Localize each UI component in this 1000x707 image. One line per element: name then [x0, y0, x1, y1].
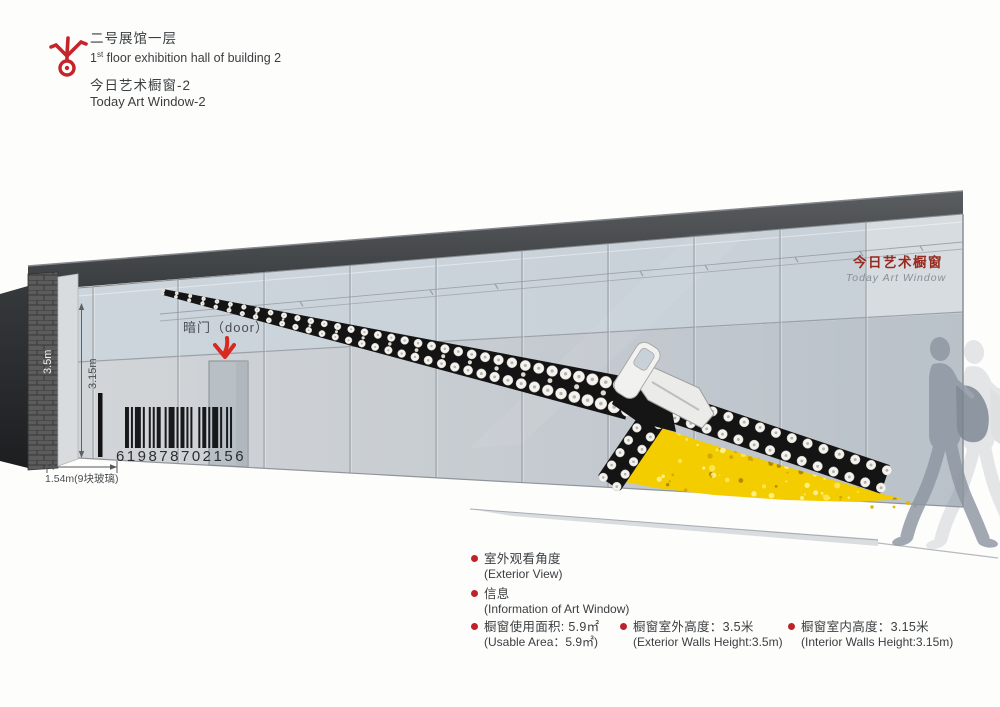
slide-canvas: 暗门（door） 3.15m 619878702156 3.5m 1. — [0, 0, 1000, 707]
today-art-museum-logo — [44, 28, 94, 84]
bullet-icon — [471, 623, 478, 630]
note-zh: 橱窗室外高度：3.5米 — [633, 619, 783, 635]
dim-interior-height-label: 3.15m — [87, 358, 99, 389]
note-en: (Exterior View) — [484, 567, 562, 582]
page-subtitle-en: Today Art Window-2 — [90, 94, 281, 110]
wall-edge-strip — [58, 274, 78, 466]
header-text: 二号展馆一层 1st floor exhibition hall of buil… — [90, 30, 281, 110]
dim-glass-width-label: 1.54m(9块玻璃) — [45, 472, 119, 485]
note-en: (Exterior Walls Height:3.5m) — [633, 635, 783, 650]
bullet-icon — [620, 623, 627, 630]
bullet-icon — [788, 623, 795, 630]
note-zh: 室外观看角度 — [484, 551, 562, 567]
dim-exterior-height-label: 3.5m — [42, 350, 54, 374]
note-information: 信息 (Information of Art Window) — [471, 586, 629, 617]
note-exterior-height: 橱窗室外高度：3.5米 (Exterior Walls Height:3.5m) — [620, 619, 783, 650]
barcode-number: 619878702156 — [116, 448, 246, 465]
door-label: 暗门（door） — [183, 320, 269, 335]
note-en: (Interior Walls Height:3.15m) — [801, 635, 953, 650]
note-zh: 信息 — [484, 586, 629, 602]
note-zh: 橱窗室内高度：3.15米 — [801, 619, 953, 635]
note-zh: 橱窗使用面积: 5.9㎡ — [484, 619, 599, 635]
note-usable-area: 橱窗使用面积: 5.9㎡ (Usable Area：5.9㎡) — [471, 619, 599, 650]
note-en: (Information of Art Window) — [484, 602, 629, 617]
left-dark-wall — [0, 286, 28, 468]
note-interior-height: 橱窗室内高度：3.15米 (Interior Walls Height:3.15… — [788, 619, 953, 650]
page-subtitle-zh: 今日艺术橱窗-2 — [90, 77, 281, 94]
page-title-en: 1st floor exhibition hall of building 2 — [90, 47, 281, 66]
note-en: (Usable Area：5.9㎡) — [484, 635, 599, 650]
note-exterior-view: 室外观看角度 (Exterior View) — [471, 551, 562, 582]
bullet-icon — [471, 555, 478, 562]
bullet-icon — [471, 590, 478, 597]
page-title-zh: 二号展馆一层 — [90, 30, 281, 47]
window-sign-en: Today Art Window — [846, 272, 947, 284]
window-sign-zh: 今日艺术橱窗 — [853, 254, 943, 270]
black-bar-art — [98, 393, 103, 457]
